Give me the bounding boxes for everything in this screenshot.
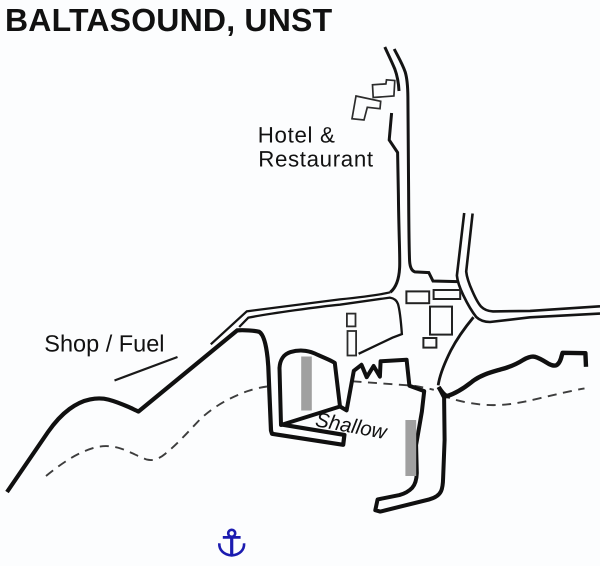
svg-text:BALTASOUND, UNST: BALTASOUND, UNST — [5, 2, 333, 38]
svg-text:Restaurant: Restaurant — [258, 147, 374, 172]
svg-text:Hotel &: Hotel & — [258, 123, 336, 148]
svg-text:Shop / Fuel: Shop / Fuel — [44, 331, 164, 357]
